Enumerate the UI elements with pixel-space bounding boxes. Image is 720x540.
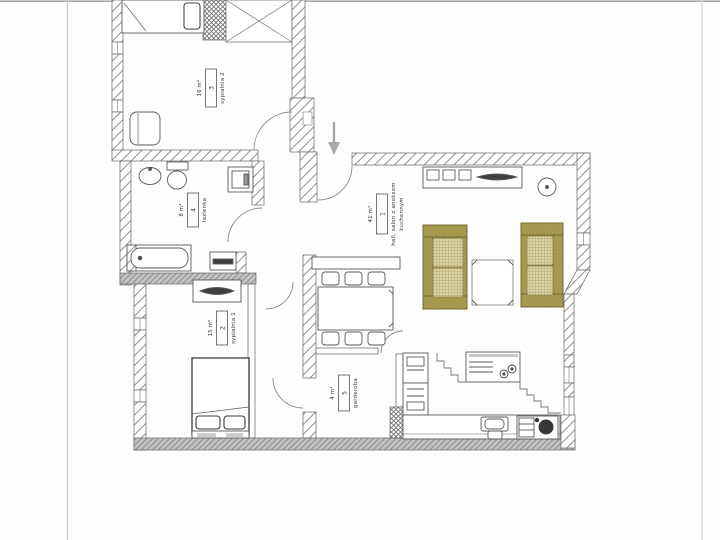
washing-machine-panel [244, 174, 248, 185]
cushion [527, 236, 553, 265]
window [564, 397, 574, 415]
sofa-left [423, 225, 467, 309]
vanity-bar [213, 259, 233, 264]
walls [112, 0, 590, 450]
wall [300, 152, 317, 202]
living-room-furniture [423, 167, 563, 309]
wall-block [390, 407, 403, 438]
drawer [407, 402, 424, 410]
desk [130, 112, 160, 145]
bedroom1-furniture [192, 280, 249, 438]
coffee-table [472, 260, 513, 305]
wall-pier [236, 252, 246, 273]
room-area: 16 m² [196, 80, 203, 97]
room-area: 8 m² [178, 203, 185, 216]
bedroom1-door-arc [273, 378, 303, 408]
chair [322, 332, 339, 345]
dining-table [318, 287, 393, 330]
floor-plan-drawing: 41 m² 1 hall, salon z aneksem kuchennym … [0, 0, 720, 540]
dining-furniture [312, 257, 400, 345]
room-label-sypialnia1: 15 m² 2 sypialnia 1 [207, 311, 237, 345]
drain-dot [138, 256, 142, 260]
pillow [184, 3, 200, 29]
room-label-lazienka: 8 m² 4 łazienka [178, 193, 208, 227]
chair [322, 272, 339, 285]
wall [134, 330, 146, 390]
bathroom-door-arc [228, 208, 262, 242]
room-number: 2 [219, 326, 226, 330]
bedroom2-door-arc [254, 112, 292, 150]
toilet-bowl [168, 171, 187, 189]
room-name: łazienka [202, 198, 208, 222]
kitchen-furniture [403, 352, 561, 439]
room-label-garderoba: 4 m² 5 garderoba [329, 375, 359, 411]
room-number: 5 [341, 391, 348, 395]
chair [368, 332, 385, 345]
room-name: kuchennym [399, 197, 405, 231]
skylight-box [226, 0, 292, 42]
wall [112, 150, 258, 161]
wall [112, 0, 123, 42]
wall [112, 112, 123, 152]
wall [564, 294, 574, 355]
bedroom2-furniture [122, 0, 204, 145]
stove-grid [519, 418, 534, 437]
room-label-hall: 41 m² 1 hall, salon z aneksem kuchennym [367, 182, 405, 246]
wall [352, 153, 590, 165]
wall [303, 412, 316, 438]
wall-pier [564, 383, 574, 397]
chair [345, 272, 362, 285]
entrance-arrow-icon [328, 122, 340, 155]
burner-dot [511, 368, 513, 370]
cushion [527, 266, 553, 295]
sideboard-box [459, 170, 471, 180]
tap-dot [535, 418, 539, 422]
room-label-sypialnia2: 16 m² 3 sypialnia 2 [196, 69, 226, 107]
burner-dot [503, 373, 505, 375]
room-number: 1 [379, 212, 386, 216]
corridor-door-arc [266, 282, 293, 309]
sink-bowl-dark [539, 420, 554, 435]
window [134, 390, 146, 402]
window [577, 233, 590, 245]
wall [303, 255, 316, 378]
room-area: 4 m² [329, 386, 336, 399]
room-name: hall, salon z aneksem [391, 182, 397, 246]
furniture [122, 0, 563, 439]
console-table [312, 257, 400, 269]
room-name: sypialnia 2 [220, 72, 226, 104]
steps-left [437, 353, 466, 382]
wall [252, 161, 264, 205]
chair [368, 272, 385, 285]
sideboard-box [443, 170, 455, 180]
sideboard-box [427, 170, 439, 180]
window [564, 367, 574, 383]
faucet-dot [149, 168, 152, 171]
wall [112, 54, 123, 100]
wall-pier [564, 355, 574, 367]
sink-front [488, 431, 502, 439]
shaft-block [203, 0, 226, 40]
scanned-floor-plan-page: 41 m² 1 hall, salon z aneksem kuchennym … [0, 0, 720, 540]
cushion [433, 268, 463, 297]
room-name: garderoba [353, 378, 359, 408]
cushion [433, 238, 463, 267]
wall-thin [396, 354, 403, 407]
room-name: sypialnia 1 [231, 312, 237, 344]
bathroom-fixtures [127, 162, 253, 271]
wall [577, 245, 590, 270]
room-number: 4 [190, 208, 197, 212]
wall [577, 153, 590, 233]
lamp-dot [546, 186, 549, 189]
wall-notch [303, 112, 312, 125]
window [134, 318, 146, 330]
island-rail [469, 354, 518, 357]
sofa-right [521, 223, 563, 307]
window [112, 100, 123, 112]
room-area: 15 m² [207, 320, 214, 337]
wall [134, 438, 575, 450]
wall-step [564, 270, 590, 294]
pillow [196, 416, 220, 429]
sink-basin [485, 419, 504, 429]
headboard-pad [197, 433, 216, 437]
scan-artifacts [0, 0, 720, 540]
steps-right [520, 382, 561, 413]
entrance-door-arc [318, 166, 352, 200]
oven-inner [407, 357, 424, 366]
chair [345, 332, 362, 345]
wall [292, 0, 305, 98]
wall [134, 284, 146, 318]
pillow [224, 416, 245, 429]
room-number: 3 [208, 86, 215, 90]
window [112, 42, 123, 54]
wall-thin [316, 348, 378, 354]
toilet-tank [167, 162, 188, 170]
room-area: 41 m² [367, 206, 374, 223]
wall [561, 415, 575, 448]
headboard-pad [226, 433, 243, 437]
